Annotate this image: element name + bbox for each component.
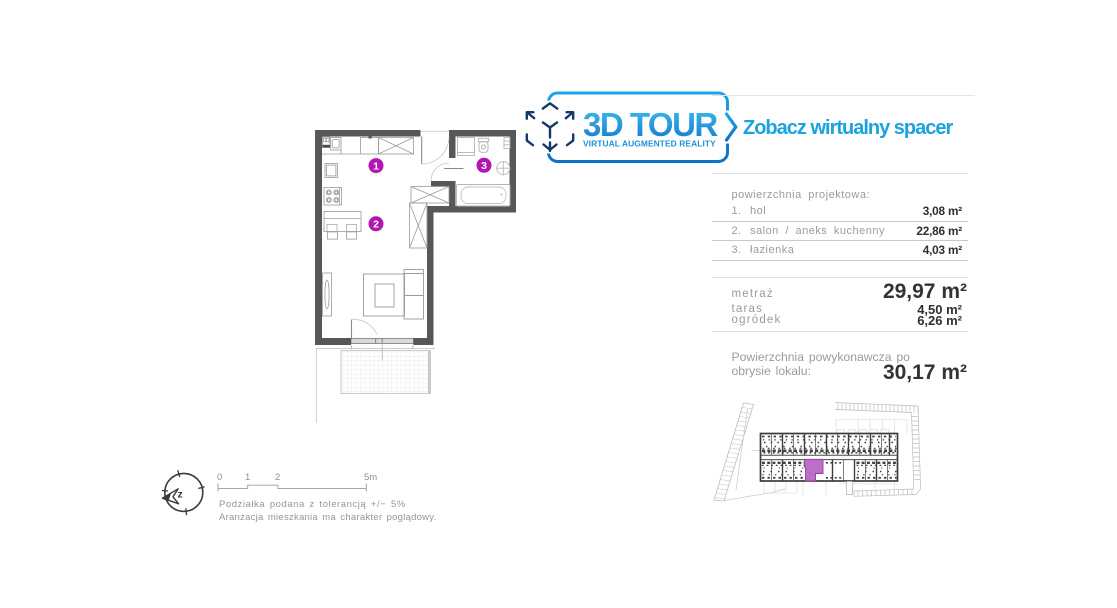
svg-text:2: 2 [373, 219, 379, 231]
svg-text:1: 1 [373, 160, 379, 172]
svg-text:3: 3 [481, 160, 487, 172]
svg-text:3D TOUR: 3D TOUR [583, 106, 718, 143]
svg-text:VIRTUAL AUGMENTED REALITY: VIRTUAL AUGMENTED REALITY [583, 139, 716, 149]
svg-text:z: z [178, 489, 183, 501]
